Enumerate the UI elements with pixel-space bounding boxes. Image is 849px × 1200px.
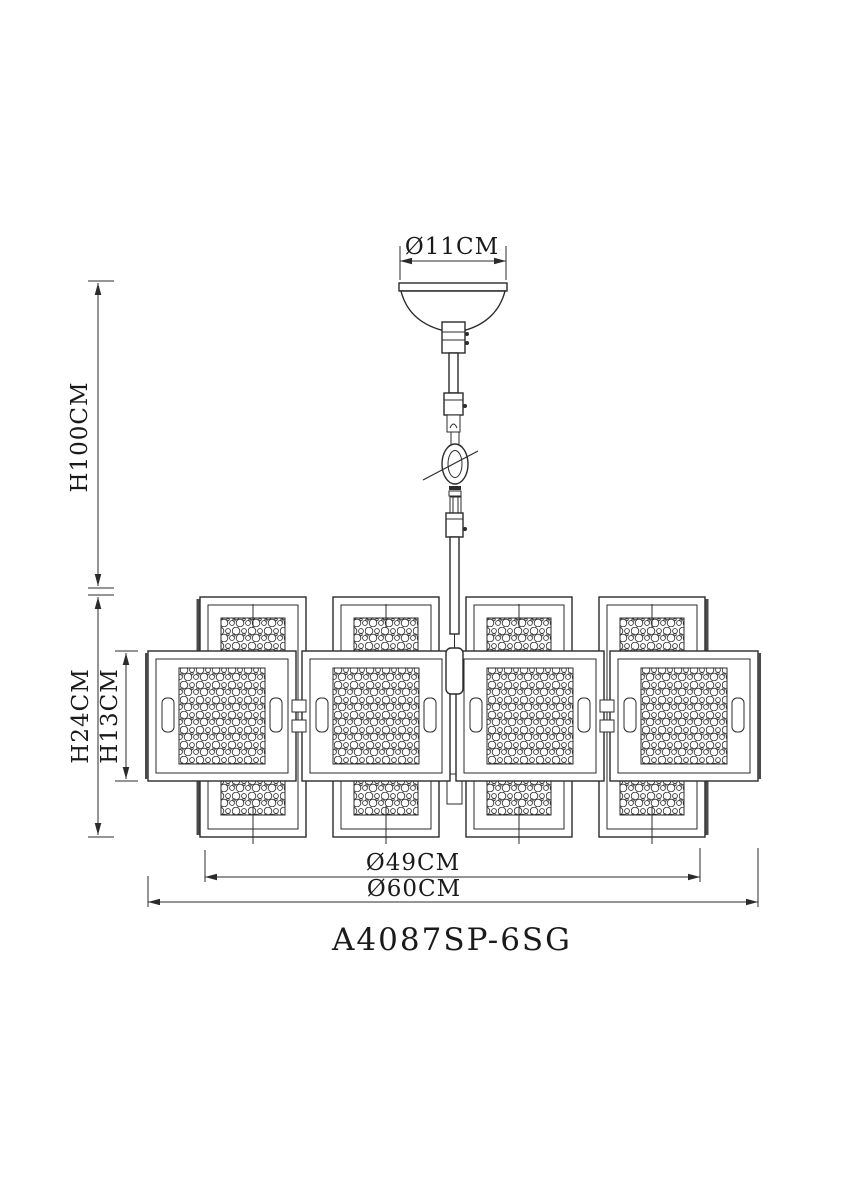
panel-height-label: H13CM bbox=[97, 668, 123, 763]
set-screw bbox=[463, 404, 467, 408]
model-number: A4087SP-6SG bbox=[331, 922, 572, 958]
technical-drawing-page: Ø11CM H100CM H24CM H13CM Ø49 bbox=[0, 0, 849, 1200]
set-screw bbox=[465, 332, 469, 336]
canopy-connector-block bbox=[442, 322, 465, 353]
overall-diameter-label: Ø60CM bbox=[367, 876, 461, 902]
front-frame-1 bbox=[148, 651, 296, 781]
dimension-panel-height: H13CM bbox=[97, 651, 138, 781]
front-frame-2 bbox=[302, 651, 450, 781]
suspension-height-label: H100CM bbox=[67, 381, 93, 492]
body-height-label: H24CM bbox=[68, 668, 94, 763]
rod-coupler bbox=[444, 393, 463, 415]
dimension-suspension-height: H100CM bbox=[67, 281, 114, 588]
lower-rod bbox=[450, 537, 459, 634]
inner-diameter-label: Ø49CM bbox=[366, 850, 460, 876]
center-hanger-link bbox=[446, 648, 463, 694]
link-stud bbox=[451, 432, 459, 445]
canopy-top-plate bbox=[399, 283, 507, 291]
set-screw bbox=[465, 341, 469, 345]
ferrule-band bbox=[449, 486, 461, 490]
stem-cylinder bbox=[450, 497, 461, 513]
canopy-diameter-label: Ø11CM bbox=[405, 234, 499, 260]
lower-coupler-block bbox=[446, 513, 463, 537]
dimension-canopy-diameter: Ø11CM bbox=[400, 234, 506, 280]
set-screw bbox=[463, 527, 467, 531]
chandelier-dimension-diagram: Ø11CM H100CM H24CM H13CM Ø49 bbox=[0, 0, 849, 1200]
upper-rod bbox=[449, 353, 458, 393]
front-frame-3 bbox=[456, 651, 604, 781]
ferrule bbox=[449, 491, 461, 496]
front-frame-4 bbox=[610, 651, 758, 781]
front-frame-row bbox=[147, 648, 760, 781]
